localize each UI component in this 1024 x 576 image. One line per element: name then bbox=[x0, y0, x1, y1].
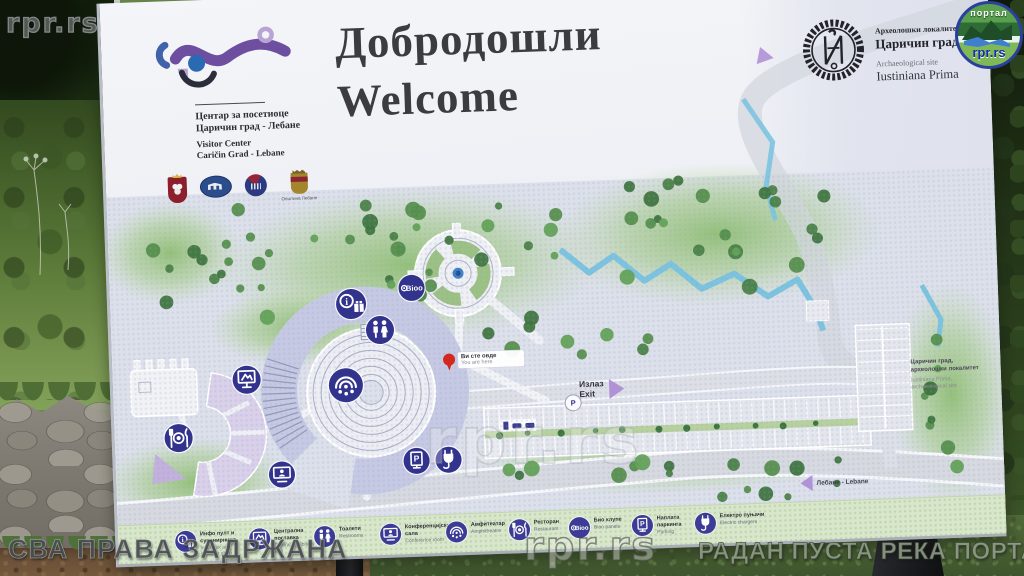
exhibition-map-icon bbox=[232, 365, 261, 394]
lebane-coat-of-arms bbox=[290, 172, 308, 194]
restrooms-map-icon bbox=[366, 316, 395, 345]
conference-icon bbox=[380, 523, 402, 545]
welcome-sign-board: Центар за посетиоце Царичин град - Лебан… bbox=[96, 0, 1006, 567]
site-line2-sr: Царичин град bbox=[875, 34, 961, 53]
svg-text:P: P bbox=[413, 453, 419, 463]
info-souvenir-map-icon: i bbox=[336, 289, 367, 320]
lebane-municipality-logo: Општина Лебане bbox=[279, 172, 318, 201]
lebane-arrow-icon bbox=[800, 475, 813, 491]
conference-map-icon bbox=[269, 461, 296, 488]
site-title-block: Археолошки локалитет Царичин град Archae… bbox=[875, 24, 962, 85]
badge-top-text: портал bbox=[958, 8, 1020, 18]
title-english: Welcome bbox=[336, 66, 604, 127]
wall-grass-edge bbox=[0, 382, 124, 408]
lebane-road-text: Лебане - Lebane bbox=[816, 478, 868, 487]
dry-plant bbox=[10, 150, 90, 280]
visitor-center-logo bbox=[152, 23, 304, 92]
badge-mountain bbox=[962, 18, 1012, 40]
partner-logos: Општина Лебане bbox=[168, 172, 319, 211]
watermark-top-left: rpr.rs bbox=[6, 8, 100, 39]
vc-line2-sr: Царичин град - Лебане bbox=[196, 119, 301, 134]
lebane-road-label: Лебане - Lebane bbox=[800, 473, 868, 491]
restaurant-map-icon bbox=[164, 424, 193, 453]
iustiniana-prima-emblem bbox=[800, 17, 866, 83]
lebane-caption: Општина Лебане bbox=[281, 195, 317, 201]
institute-logo bbox=[244, 174, 267, 197]
exit-en: Exit bbox=[579, 389, 604, 400]
exit-arrow-icon bbox=[609, 379, 625, 400]
rights-reserved-text: СВА ПРАВА ЗАДРЖАНА bbox=[8, 534, 348, 565]
title-cyrillic: Добродошли bbox=[334, 8, 602, 69]
site-line2-en: Iustiniana Prima bbox=[876, 67, 962, 85]
portal-credit-text: РАДАН ПУСТА РЕКА ПОРТАЛ bbox=[698, 538, 1024, 566]
exit-label: Излаз Exit bbox=[579, 379, 624, 401]
welcome-title: Добродошли Welcome bbox=[334, 8, 604, 127]
svg-text:i: i bbox=[345, 297, 348, 308]
you-are-here-en: You are here bbox=[461, 358, 521, 366]
watermark-center: rpr.rs bbox=[425, 405, 643, 479]
watermark-bottom-center: rpr.rs bbox=[524, 524, 657, 570]
you-are-here-label: Ви сте овде You are here bbox=[458, 350, 525, 368]
legend-item-ev-charger: Електро пуњачи Electric chargers bbox=[695, 511, 769, 535]
badge-bottom-text: rpr.rs bbox=[958, 45, 1020, 60]
amphitheatre-map-icon bbox=[328, 368, 363, 403]
photo-of-welcome-sign: Центар за посетиоце Царичин град - Лебан… bbox=[0, 0, 1024, 576]
site-direction-label: Царичин град, археолошки локалитет Iusti… bbox=[910, 357, 995, 392]
portal-badge-logo: портал rpr.rs bbox=[955, 1, 1023, 69]
bioo-map-icon: Bioo bbox=[398, 274, 425, 301]
amphitheatre-icon bbox=[446, 521, 468, 543]
visitor-center-title: Центар за посетиоце Царичин град - Лебан… bbox=[195, 108, 301, 161]
legend-item-conference: Конференцијска сала Conference room bbox=[380, 522, 454, 546]
museum-logo bbox=[200, 175, 233, 198]
serbia-coat-of-arms-logo bbox=[168, 177, 188, 204]
svg-text:Bioo: Bioo bbox=[406, 283, 424, 293]
legend-label-en: Electric chargers bbox=[720, 518, 768, 526]
ev-charger-icon bbox=[695, 512, 717, 534]
